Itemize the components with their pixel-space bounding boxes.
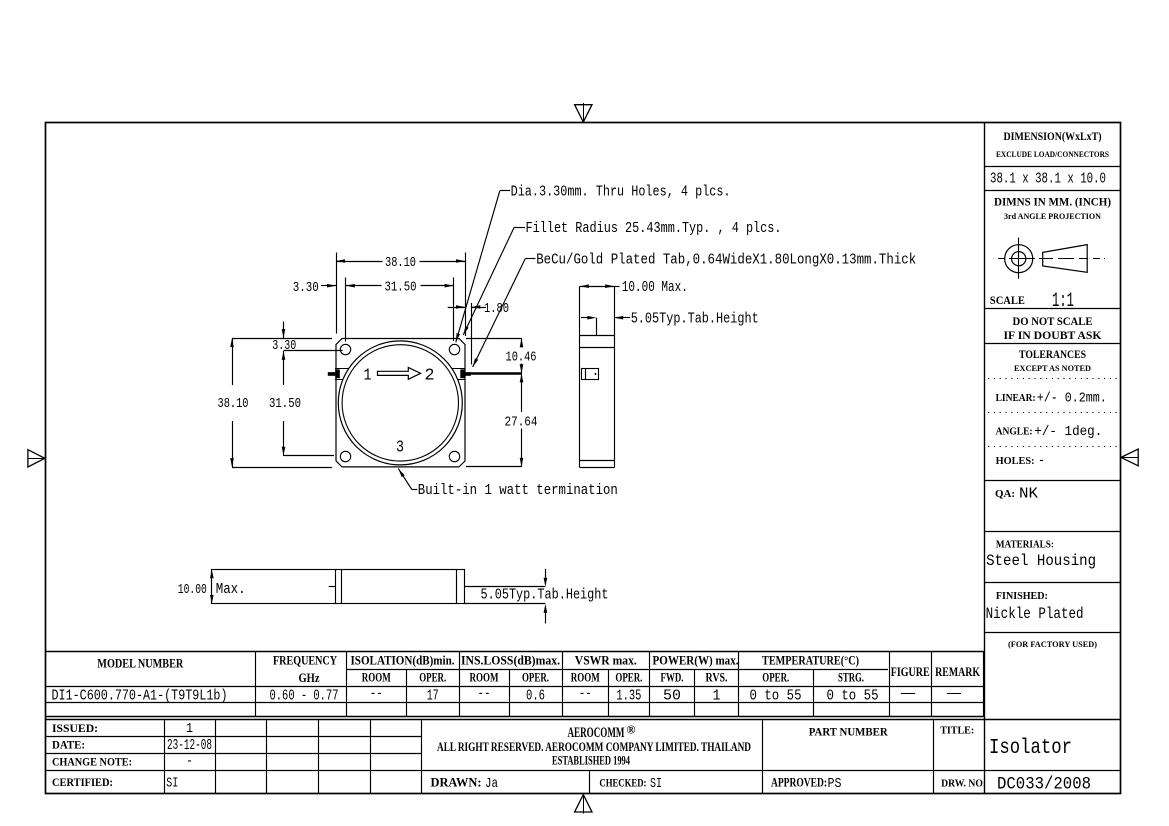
svg-text:GHz: GHz [299,670,320,685]
svg-text:INS.LOSS(dB)max.: INS.LOSS(dB)max. [461,652,560,667]
svg-text:MODEL NUMBER: MODEL NUMBER [97,655,183,670]
svg-text:®: ® [627,723,636,737]
svg-text:ROOM: ROOM [470,671,499,685]
svg-text:TEMPERATURE(°C): TEMPERATURE(°C) [762,652,859,667]
svg-text:TOLERANCES: TOLERANCES [1019,349,1086,361]
svg-text:LINEAR:: LINEAR: [996,392,1036,404]
svg-text:38.10: 38.10 [218,396,249,412]
svg-text:2: 2 [425,367,435,386]
svg-text:NK: NK [1019,485,1038,502]
svg-text:+/- 1deg.: +/- 1deg. [1034,424,1102,440]
svg-text:DRAWN:: DRAWN: [431,776,482,790]
svg-text:IF IN DOUBT ASK: IF IN DOUBT ASK [1004,330,1102,342]
svg-text:POWER(W) max.: POWER(W) max. [653,652,739,667]
svg-text:31.50: 31.50 [269,396,301,412]
svg-text:CERTIFIED:: CERTIFIED: [52,777,113,789]
svg-text:0.60 - 0.77: 0.60 - 0.77 [270,687,339,704]
svg-text:ISSUED:: ISSUED: [52,723,98,735]
svg-text:--: -- [370,686,383,703]
svg-text:EXCEPT AS NOTED: EXCEPT AS NOTED [1014,363,1091,373]
svg-text:DC033/2008: DC033/2008 [997,775,1091,795]
svg-text:QA:: QA: [995,488,1015,500]
svg-text:1:1: 1:1 [1052,290,1074,313]
svg-text:3.30: 3.30 [293,280,319,296]
svg-text:17: 17 [427,687,439,704]
svg-text:ALL RIGHT RESERVED. AEROCOMM C: ALL RIGHT RESERVED. AEROCOMM COMPANY LIM… [437,740,751,754]
svg-text:Fillet Radius 25.43mm.Typ. , 4: Fillet Radius 25.43mm.Typ. , 4 plcs. [526,220,782,237]
svg-text:23-12-08: 23-12-08 [167,738,212,754]
svg-text:Nickle Plated: Nickle Plated [986,605,1084,623]
svg-text:APPROVED:: APPROVED: [771,776,827,790]
svg-text:OPER.: OPER. [522,671,549,685]
svg-text:1: 1 [713,687,721,704]
svg-text:FIGURE: FIGURE [891,665,930,679]
svg-text:PART NUMBER: PART NUMBER [809,725,888,739]
svg-text:3rd ANGLE PROJECTION: 3rd ANGLE PROJECTION [1004,211,1102,221]
svg-text:27.64: 27.64 [505,414,538,430]
svg-text:5.05Typ.Tab.Height: 5.05Typ.Tab.Height [631,310,759,327]
svg-text:FINISHED:: FINISHED: [996,590,1048,602]
svg-text:0.6: 0.6 [526,687,545,704]
svg-text:ANGLE:: ANGLE: [996,425,1033,437]
svg-text:ESTABLISHED 1994: ESTABLISHED 1994 [552,754,631,768]
svg-text:VSWR max.: VSWR max. [575,652,637,667]
svg-text:Built-in 1 watt termination: Built-in 1 watt termination [418,482,618,499]
svg-text:DI1-C600.770-A1-(T9T9L1b): DI1-C600.770-A1-(T9T9L1b) [52,687,228,704]
svg-text:1: 1 [364,367,372,386]
svg-text:-: - [186,754,193,770]
svg-text:DIMNS IN MM. (INCH): DIMNS IN MM. (INCH) [994,196,1111,208]
svg-text:Steel Housing: Steel Housing [986,552,1096,570]
svg-text:Ja: Ja [485,776,498,792]
svg-text:ROOM: ROOM [362,671,391,685]
svg-text:0 to 55: 0 to 55 [750,687,802,704]
svg-text:HOLES:: HOLES: [996,455,1035,467]
svg-text:+/- 0.2mm.: +/- 0.2mm. [1037,390,1107,406]
svg-text:FREQUENCY: FREQUENCY [273,652,337,667]
svg-text:10.00 Max.: 10.00 Max. [622,279,688,296]
svg-text:Max.: Max. [216,581,246,598]
svg-text:SI: SI [650,776,662,792]
svg-text:5.05Typ.Tab.Height: 5.05Typ.Tab.Height [481,587,609,604]
svg-text:BeCu/Gold Plated Tab,0.64WideX: BeCu/Gold Plated Tab,0.64WideX1.80LongX0… [536,251,916,268]
svg-text:AEROCOMM: AEROCOMM [568,725,625,741]
svg-text:3.30: 3.30 [272,338,296,354]
svg-text:CHECKED:: CHECKED: [599,776,646,790]
svg-text:DATE:: DATE: [52,740,85,752]
svg-text:--: -- [579,686,592,703]
svg-text:OPER.: OPER. [615,671,642,685]
svg-text:38.1 x 38.1 x 10.0: 38.1 x 38.1 x 10.0 [990,170,1106,187]
svg-text:ROOM: ROOM [571,671,600,685]
svg-text:(FOR FACTORY USED): (FOR FACTORY USED) [1008,639,1097,649]
svg-text:50: 50 [663,687,681,704]
svg-text:EXCLUDE LOAD/CONNECTORS: EXCLUDE LOAD/CONNECTORS [996,149,1109,159]
svg-text:DO NOT SCALE: DO NOT SCALE [1013,316,1093,328]
svg-text:REMARK: REMARK [935,665,980,679]
svg-text:—: — [899,686,916,703]
svg-text:CHANGE NOTE:: CHANGE NOTE: [52,756,132,768]
svg-text:10.00: 10.00 [178,582,207,598]
svg-text:TITLE:: TITLE: [940,725,974,737]
svg-text:DIMENSION(WxLxT): DIMENSION(WxLxT) [1004,131,1102,143]
svg-text:—: — [945,686,962,703]
svg-text:OPER.: OPER. [419,671,446,685]
svg-text:MATERIALS:: MATERIALS: [996,539,1054,551]
svg-text:ISOLATION(dB)min.: ISOLATION(dB)min. [351,652,455,667]
svg-text:31.50: 31.50 [385,280,417,296]
svg-text:Dia.3.30mm. Thru Holes, 4 plcs: Dia.3.30mm. Thru Holes, 4 plcs. [511,184,731,201]
svg-text:Isolator: Isolator [989,737,1072,760]
svg-text:STRG.: STRG. [838,671,864,685]
svg-text:0 to 55: 0 to 55 [827,687,879,704]
svg-text:1: 1 [186,721,193,737]
svg-text:-: - [1038,453,1045,469]
svg-text:RVS.: RVS. [706,671,728,685]
svg-text:DRW. NO:: DRW. NO: [941,778,986,790]
svg-text:38.10: 38.10 [385,255,416,271]
svg-text:SCALE: SCALE [990,295,1025,307]
svg-text:3: 3 [396,439,404,458]
svg-text:FWD.: FWD. [661,671,684,685]
svg-text:SI: SI [166,775,178,791]
svg-text:1.35: 1.35 [616,687,641,704]
svg-text:10.46: 10.46 [506,349,537,365]
svg-text:1.80: 1.80 [484,301,509,317]
svg-text:OPER.: OPER. [762,671,789,685]
svg-text:PS: PS [828,776,842,792]
svg-text:--: -- [478,686,491,703]
